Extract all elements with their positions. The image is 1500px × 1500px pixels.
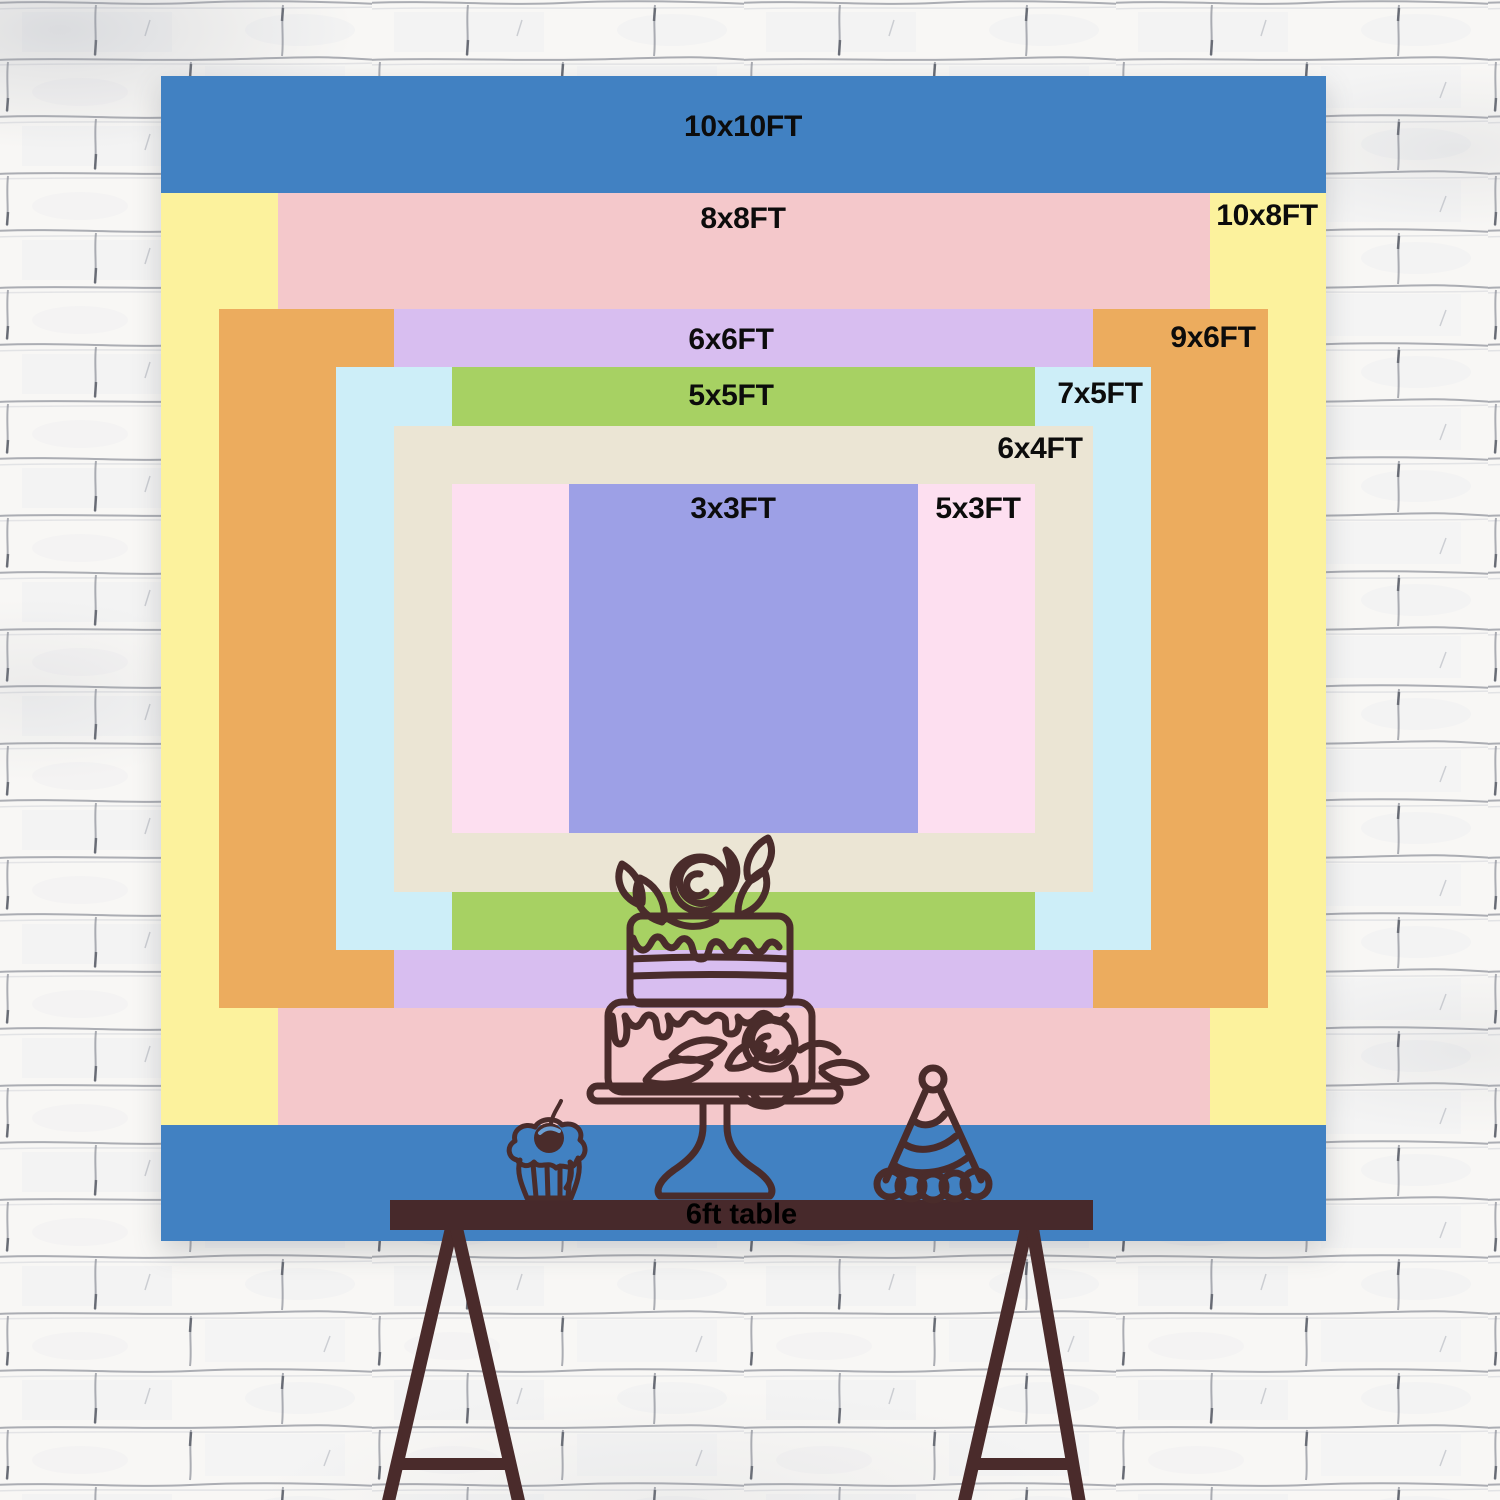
scene: 10x10FT10x8FT8x8FT9x6FT6x6FT7x5FT5x5FT6x… [0, 0, 1500, 1500]
cake-illustration [590, 838, 866, 1196]
table-size-label: 6ft table [686, 1199, 797, 1232]
party-hat-illustration [877, 1068, 989, 1200]
table-legs [386, 1226, 1081, 1500]
cupcake-illustration [509, 1101, 585, 1198]
party-table-illustration [0, 0, 1500, 1500]
